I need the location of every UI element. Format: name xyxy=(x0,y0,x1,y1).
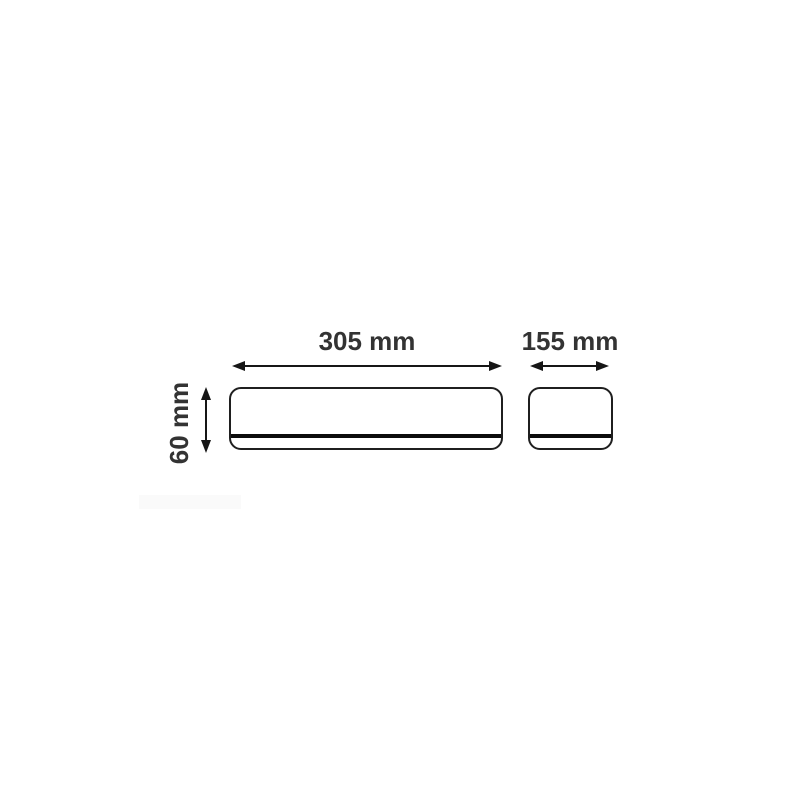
front-width-dimension-arrow xyxy=(232,360,502,372)
front-view-divider-line xyxy=(231,434,501,438)
front-view-outline xyxy=(229,387,503,450)
side-view-divider-line xyxy=(530,434,611,438)
arrowhead-up-icon xyxy=(201,387,211,400)
front-width-dimension-label: 305 mm xyxy=(232,328,502,354)
side-width-dimension-arrow xyxy=(530,360,609,372)
arrowhead-left-icon xyxy=(232,361,245,371)
dimension-diagram: 305 mm 155 mm 60 mm xyxy=(0,0,800,800)
arrowhead-down-icon xyxy=(201,440,211,453)
faint-watermark-artifact xyxy=(139,495,241,509)
dimension-line-horizontal xyxy=(543,365,596,367)
arrowhead-right-icon xyxy=(489,361,502,371)
dimension-line-horizontal xyxy=(245,365,489,367)
dimension-line-vertical xyxy=(205,400,207,440)
arrowhead-right-icon xyxy=(596,361,609,371)
side-view-outline xyxy=(528,387,613,450)
side-width-dimension-label: 155 mm xyxy=(495,328,645,354)
arrowhead-left-icon xyxy=(530,361,543,371)
front-height-dimension-arrow xyxy=(200,387,212,453)
front-height-dimension-label: 60 mm xyxy=(166,363,192,483)
